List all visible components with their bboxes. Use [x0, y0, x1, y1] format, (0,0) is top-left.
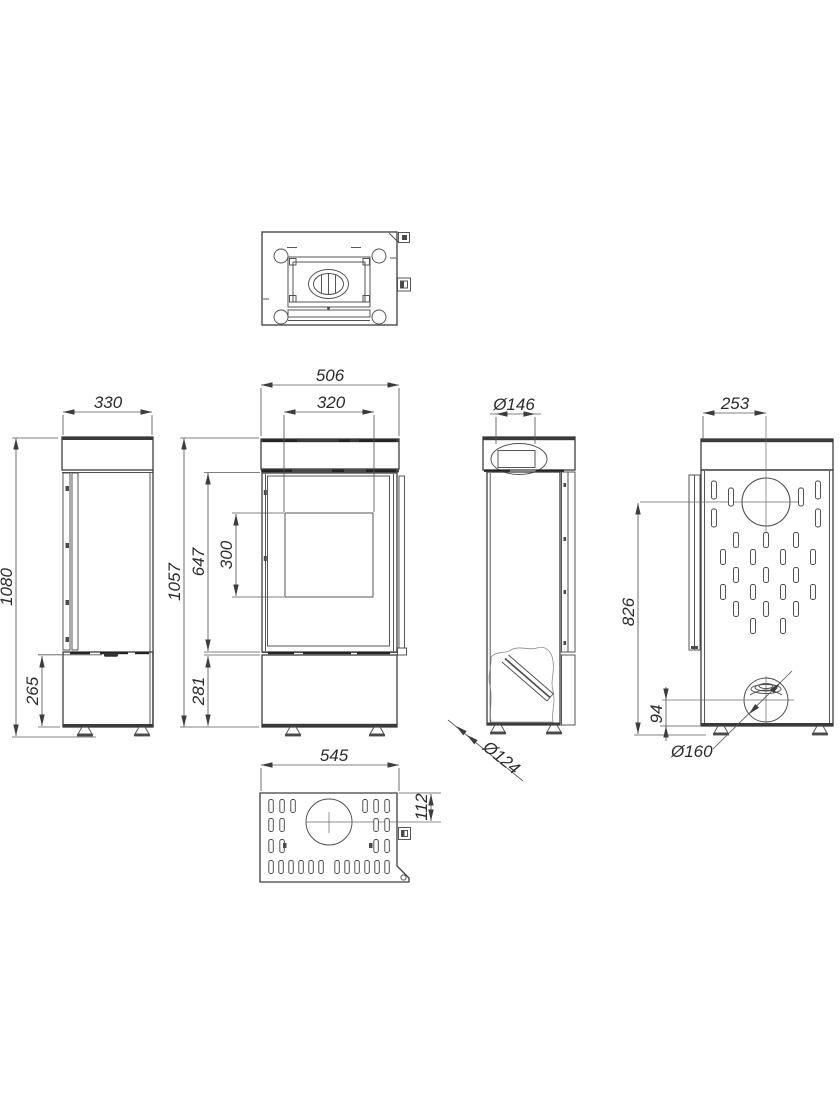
dim-rear-flue-offset-label: 253 — [720, 394, 750, 413]
cutaway-outline — [489, 647, 554, 722]
foot — [285, 727, 385, 736]
vent-slots — [269, 800, 390, 874]
dim-base-height-label: 281 — [189, 677, 208, 706]
dim-bottom-depth-label: 545 — [320, 746, 349, 765]
glass-pane — [285, 513, 373, 597]
dim-depth-label: 330 — [94, 393, 123, 412]
dim-rear-inlet-diameter-label: Ø160 — [670, 742, 713, 761]
dim-air-inlet-diameter-label: Ø124 — [479, 737, 524, 779]
dim-firebox-height-label: 647 — [189, 547, 208, 576]
drawing-canvas: 506 320 1057 647 300 281 — [0, 0, 840, 1120]
foot — [77, 727, 150, 736]
dimensions: 506 320 1057 647 300 281 — [0, 366, 792, 821]
dim-front-height-label: 1057 — [165, 563, 184, 601]
dim-bottom-offset-label: 112 — [412, 793, 431, 821]
foot — [490, 725, 562, 734]
right-side-view — [483, 437, 575, 734]
top-view — [262, 232, 411, 325]
dim-flue-diameter-label: Ø146 — [492, 395, 535, 414]
dim-front-width-label: 506 — [316, 366, 345, 385]
technical-drawing: 506 320 1057 647 300 281 — [0, 0, 840, 1120]
air-duct — [502, 655, 554, 701]
dim-glass-width-label: 320 — [317, 393, 346, 412]
dim-total-height-label: 1080 — [0, 568, 16, 606]
back-view — [640, 416, 833, 735]
dim-glass-height-label: 300 — [217, 540, 236, 569]
dim-rear-flue-height-label: 826 — [619, 597, 638, 626]
dim-handle-height-label: 265 — [23, 676, 42, 706]
front-view — [261, 439, 407, 736]
dim-rear-inlet-height-label: 94 — [647, 705, 666, 724]
foot — [713, 726, 828, 735]
left-side-view — [62, 437, 153, 736]
